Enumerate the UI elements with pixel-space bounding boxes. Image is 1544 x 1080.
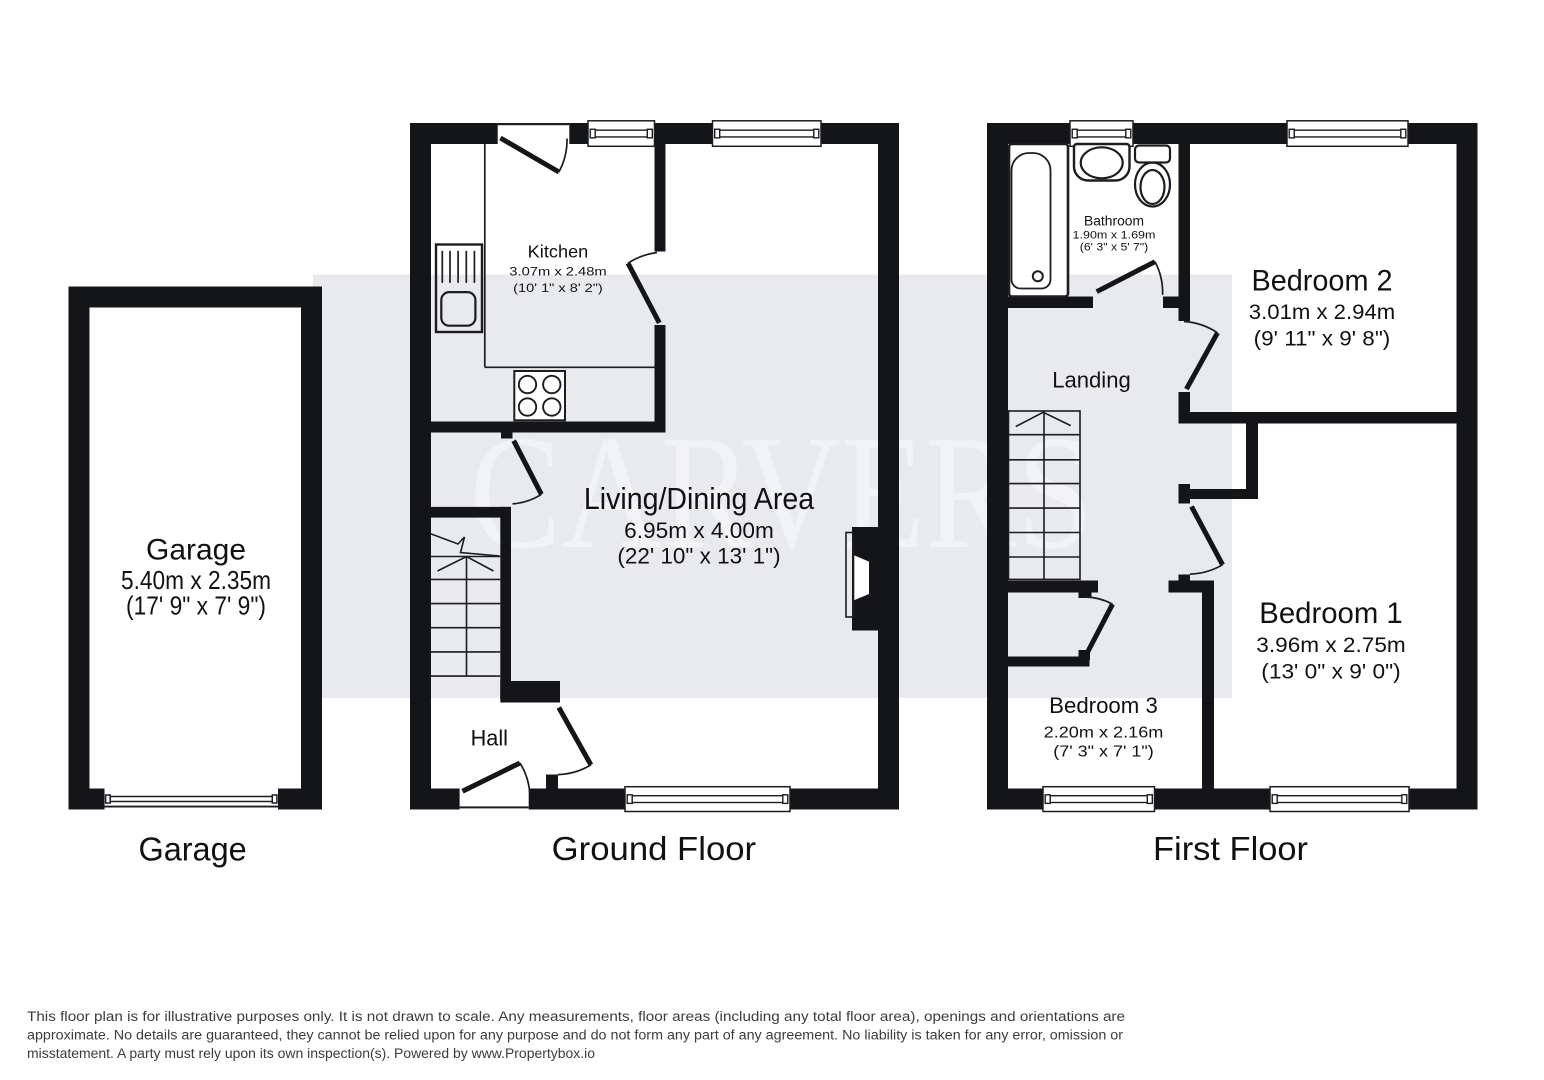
- svg-text:Hall: Hall: [471, 726, 508, 751]
- svg-text:(10' 1" x 8' 2"): (10' 1" x 8' 2"): [513, 281, 603, 295]
- svg-text:Landing: Landing: [1052, 368, 1131, 393]
- svg-text:Garage: Garage: [146, 534, 246, 567]
- svg-text:(17' 9" x 7' 9"): (17' 9" x 7' 9"): [126, 591, 266, 621]
- svg-text:Living/Dining Area: Living/Dining Area: [584, 481, 815, 516]
- svg-text:3.07m x 2.48m: 3.07m x 2.48m: [509, 264, 606, 278]
- svg-text:approximate. No details are gu: approximate. No details are guaranteed, …: [27, 1028, 1124, 1043]
- svg-text:Bedroom 2: Bedroom 2: [1252, 265, 1393, 298]
- svg-text:Kitchen: Kitchen: [528, 242, 589, 262]
- svg-text:This floor plan is for illustr: This floor plan is for illustrative purp…: [27, 1009, 1125, 1024]
- svg-text:Ground Floor: Ground Floor: [552, 831, 756, 868]
- svg-text:3.01m x 2.94m: 3.01m x 2.94m: [1249, 301, 1395, 324]
- svg-text:(22' 10" x 13' 1"): (22' 10" x 13' 1"): [617, 544, 780, 569]
- svg-text:3.96m x 2.75m: 3.96m x 2.75m: [1256, 634, 1405, 657]
- svg-text:(9' 11" x 9' 8"): (9' 11" x 9' 8"): [1254, 328, 1391, 351]
- svg-text:Bedroom 1: Bedroom 1: [1259, 597, 1402, 630]
- svg-text:First Floor: First Floor: [1153, 831, 1308, 868]
- svg-text:(7' 3" x 7' 1"): (7' 3" x 7' 1"): [1053, 744, 1154, 761]
- svg-text:Bathroom: Bathroom: [1084, 213, 1144, 228]
- svg-text:6.95m x 4.00m: 6.95m x 4.00m: [624, 518, 774, 543]
- svg-text:(13' 0" x 9' 0"): (13' 0" x 9' 0"): [1261, 661, 1400, 684]
- svg-text:Garage: Garage: [138, 831, 246, 868]
- svg-text:1.90m x 1.69m: 1.90m x 1.69m: [1073, 229, 1156, 241]
- svg-text:Bedroom 3: Bedroom 3: [1049, 693, 1158, 718]
- svg-text:misstatement. A party must rel: misstatement. A party must rely upon its…: [27, 1046, 595, 1061]
- svg-text:2.20m x 2.16m: 2.20m x 2.16m: [1044, 725, 1164, 742]
- svg-text:(6' 3" x 5' 7"): (6' 3" x 5' 7"): [1080, 241, 1149, 253]
